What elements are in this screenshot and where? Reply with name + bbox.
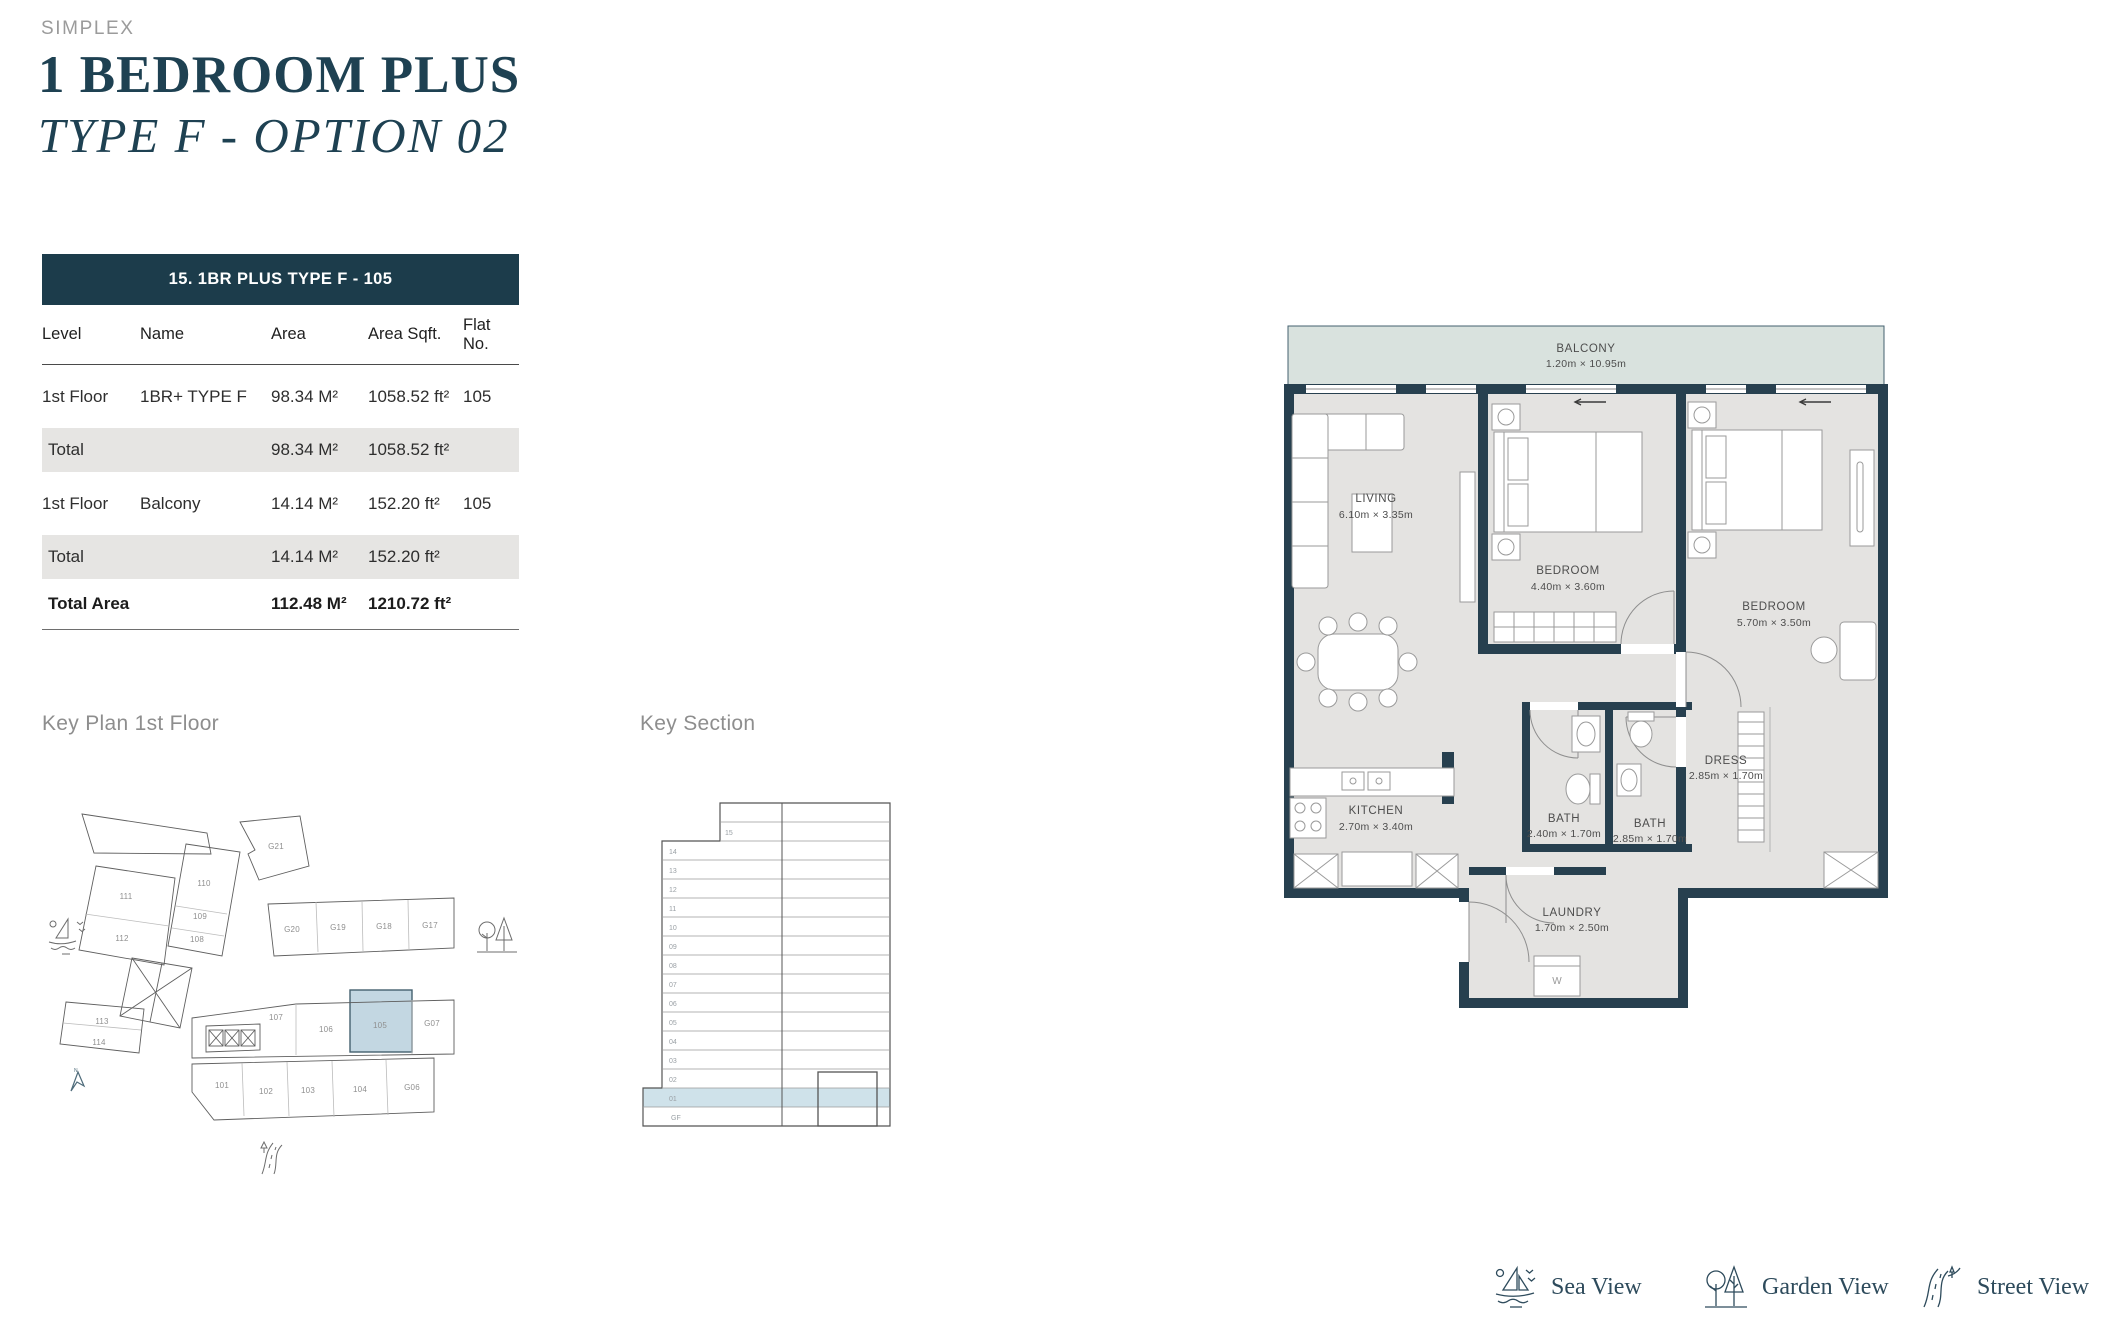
svg-text:6.10m × 3.35m: 6.10m × 3.35m xyxy=(1339,509,1413,521)
sink xyxy=(1572,716,1600,752)
legend-street-view: Street View xyxy=(1918,1264,2089,1310)
svg-text:13: 13 xyxy=(669,868,677,875)
col-name: Name xyxy=(140,325,271,344)
key-plan-map: 111 112 110 109 108 G21 G20 G19 G18 G17 … xyxy=(44,792,524,1192)
svg-text:G20: G20 xyxy=(284,925,300,934)
wardrobe xyxy=(1494,612,1616,642)
bedroom1-label: BEDROOM xyxy=(1536,565,1600,577)
stove xyxy=(1290,798,1326,838)
svg-text:105: 105 xyxy=(373,1021,387,1030)
svg-text:2.40m × 1.70m: 2.40m × 1.70m xyxy=(1527,828,1601,840)
svg-text:01: 01 xyxy=(669,1096,677,1103)
page-title: 1 BEDROOM PLUS xyxy=(38,46,520,104)
table-row: 1st Floor Balcony 14.14 M² 152.20 ft² 10… xyxy=(42,472,519,535)
living-label: LIVING xyxy=(1355,493,1396,505)
north-arrow-icon: N xyxy=(71,1068,84,1091)
col-level: Level xyxy=(42,325,140,344)
shaft-box xyxy=(1416,854,1458,888)
balcony-label: BALCONY xyxy=(1556,343,1615,355)
svg-text:5.70m × 3.50m: 5.70m × 3.50m xyxy=(1737,617,1811,629)
tv-unit xyxy=(1460,472,1475,602)
dress-label: DRESS xyxy=(1705,755,1748,767)
garden-view-icon xyxy=(1703,1264,1749,1310)
svg-text:2.85m × 1.70m: 2.85m × 1.70m xyxy=(1613,833,1687,845)
col-flat-no: Flat No. xyxy=(463,316,519,354)
key-section-floor-labels: 15 14 13 12 11 10 09 08 07 06 05 04 03 0… xyxy=(669,830,733,1122)
svg-text:4.40m × 3.60m: 4.40m × 3.60m xyxy=(1531,581,1605,593)
svg-text:14: 14 xyxy=(669,849,677,856)
svg-text:05: 05 xyxy=(669,1020,677,1027)
table-title-bar: 15. 1BR PLUS TYPE F - 105 xyxy=(42,254,519,305)
svg-text:114: 114 xyxy=(92,1038,106,1047)
street-view-icon xyxy=(261,1142,282,1174)
garden-view-icon xyxy=(477,918,517,952)
svg-text:106: 106 xyxy=(319,1025,333,1034)
legend-garden-view: Garden View xyxy=(1703,1264,1889,1310)
shaft-box xyxy=(1824,852,1878,888)
kitchen-label: KITCHEN xyxy=(1349,805,1404,817)
table-row: 1st Floor 1BR+ TYPE F 98.34 M² 1058.52 f… xyxy=(42,365,519,428)
svg-text:2.70m × 3.40m: 2.70m × 3.40m xyxy=(1339,821,1413,833)
svg-text:104: 104 xyxy=(353,1085,367,1094)
svg-text:GF: GF xyxy=(671,1115,681,1122)
svg-text:103: 103 xyxy=(301,1086,315,1095)
svg-text:110: 110 xyxy=(197,879,211,888)
svg-text:15: 15 xyxy=(725,830,733,837)
svg-text:1.20m × 10.95m: 1.20m × 10.95m xyxy=(1546,358,1626,370)
svg-text:101: 101 xyxy=(215,1081,229,1090)
svg-text:111: 111 xyxy=(120,892,133,901)
key-section-outline xyxy=(643,803,890,1126)
table-row-total: Total 98.34 M² 1058.52 ft² xyxy=(42,428,519,472)
svg-text:113: 113 xyxy=(95,1017,109,1026)
key-section-floor-lines xyxy=(643,822,890,1107)
unit-area-table: 15. 1BR PLUS TYPE F - 105 Level Name Are… xyxy=(42,254,519,630)
svg-text:04: 04 xyxy=(669,1039,677,1046)
table-row-total: Total 14.14 M² 152.20 ft² xyxy=(42,535,519,579)
laundry-label: LAUNDRY xyxy=(1543,907,1602,919)
sink xyxy=(1617,764,1641,796)
page-title-block: 1 BEDROOM PLUS TYPE F - OPTION 02 xyxy=(38,46,520,164)
key-plan-title: Key Plan 1st Floor xyxy=(42,712,219,736)
svg-text:03: 03 xyxy=(669,1058,677,1065)
svg-text:G18: G18 xyxy=(376,922,392,931)
svg-text:107: 107 xyxy=(269,1013,283,1022)
washer-label: W xyxy=(1552,976,1562,987)
svg-text:07: 07 xyxy=(669,982,677,989)
legend-street-view-label: Street View xyxy=(1977,1274,2089,1301)
kitchen-counter xyxy=(1290,768,1454,796)
page-subtitle: TYPE F - OPTION 02 xyxy=(38,108,520,164)
svg-text:11: 11 xyxy=(669,906,676,913)
svg-text:08: 08 xyxy=(669,963,677,970)
svg-text:02: 02 xyxy=(669,1077,677,1084)
col-area: Area xyxy=(271,325,368,344)
window-bench xyxy=(1850,450,1874,546)
key-plan-unit-labels: 111 112 110 109 108 G21 G20 G19 G18 G17 … xyxy=(92,842,440,1096)
svg-text:2.85m × 1.70m: 2.85m × 1.70m xyxy=(1689,770,1763,782)
brand-label: SIMPLEX xyxy=(41,18,135,40)
svg-text:G06: G06 xyxy=(404,1083,420,1092)
svg-text:112: 112 xyxy=(115,934,129,943)
sea-view-icon xyxy=(1492,1264,1538,1310)
legend-garden-view-label: Garden View xyxy=(1762,1274,1889,1301)
svg-text:12: 12 xyxy=(669,887,677,894)
svg-text:G17: G17 xyxy=(422,921,438,930)
table-row-grand-total: Total Area 112.48 M² 1210.72 ft² xyxy=(42,579,519,630)
svg-text:G19: G19 xyxy=(330,923,346,932)
svg-text:1.70m × 2.50m: 1.70m × 2.50m xyxy=(1535,922,1609,934)
svg-text:06: 06 xyxy=(669,1001,677,1008)
key-section-diagram: 15 14 13 12 11 10 09 08 07 06 05 04 03 0… xyxy=(641,798,891,1130)
col-area-sqft: Area Sqft. xyxy=(368,325,463,344)
legend-sea-view: Sea View xyxy=(1492,1264,1642,1310)
kitchen-island xyxy=(1342,852,1412,886)
svg-text:10: 10 xyxy=(669,925,677,932)
balcony-area xyxy=(1288,326,1884,386)
toilet xyxy=(1628,712,1654,747)
svg-text:G07: G07 xyxy=(424,1019,440,1028)
svg-text:102: 102 xyxy=(259,1087,273,1096)
shaft-box xyxy=(1294,854,1338,888)
key-section-title: Key Section xyxy=(640,712,755,736)
key-plan-buildings xyxy=(60,814,454,1120)
key-section-highlight-floor-01 xyxy=(643,1088,890,1107)
bath2-label: BATH xyxy=(1634,818,1666,830)
svg-text:108: 108 xyxy=(190,935,204,944)
bath1-label: BATH xyxy=(1548,813,1580,825)
svg-text:09: 09 xyxy=(669,944,677,951)
bedroom2-label: BEDROOM xyxy=(1742,601,1806,613)
street-view-icon xyxy=(1918,1264,1964,1310)
toilet xyxy=(1566,774,1600,804)
legend-sea-view-label: Sea View xyxy=(1551,1274,1642,1301)
floor-plan: BALCONY 1.20m × 10.95m LIVING 6.10m × 3.… xyxy=(1276,322,1896,1014)
svg-text:109: 109 xyxy=(193,912,207,921)
svg-text:G21: G21 xyxy=(268,842,284,851)
table-column-headers: Level Name Area Area Sqft. Flat No. xyxy=(42,305,519,365)
